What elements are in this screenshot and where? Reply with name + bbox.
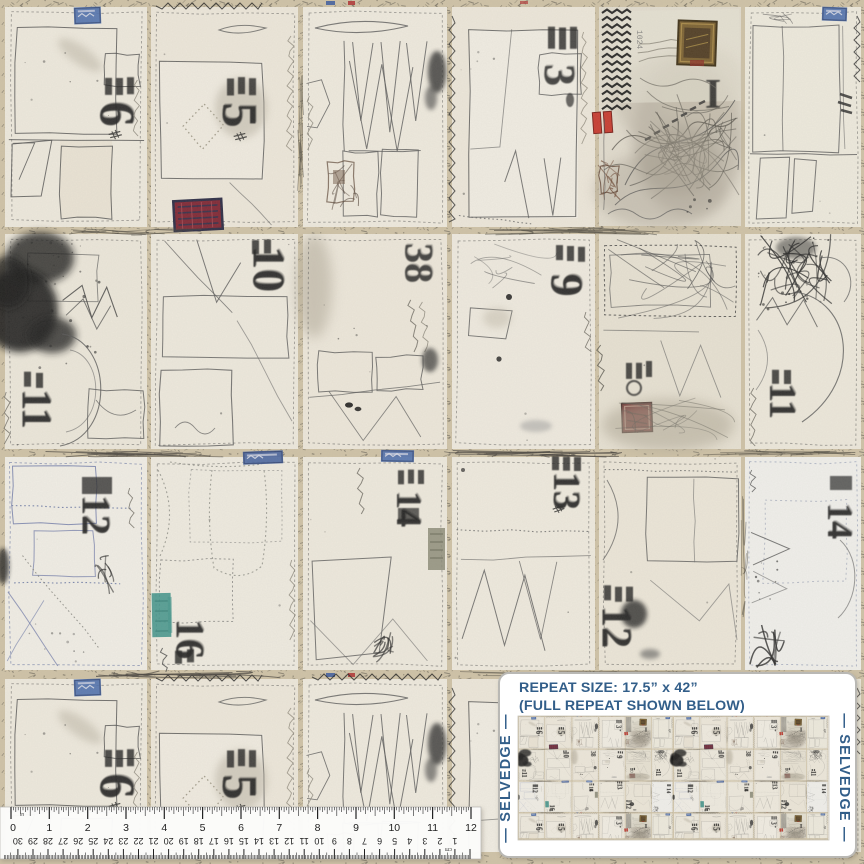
svg-text:17: 17	[209, 836, 219, 846]
svg-text:11: 11	[427, 822, 438, 834]
svg-text:14: 14	[254, 836, 264, 846]
svg-text:3: 3	[422, 836, 427, 846]
svg-text:18: 18	[194, 836, 204, 846]
svg-text:20: 20	[164, 836, 174, 846]
svg-text:1: 1	[46, 822, 52, 834]
svg-text:in: in	[20, 812, 24, 818]
svg-text:24: 24	[103, 836, 113, 846]
svg-text:30: 30	[13, 836, 23, 846]
svg-text:19: 19	[179, 836, 189, 846]
svg-text:25: 25	[88, 836, 98, 846]
svg-text:7: 7	[276, 822, 282, 834]
svg-text:REPEAT SIZE: 17.5” x 42”: REPEAT SIZE: 17.5” x 42”	[519, 680, 698, 696]
svg-text:22: 22	[133, 836, 143, 846]
svg-text:27: 27	[58, 836, 68, 846]
svg-text:10: 10	[388, 822, 400, 834]
svg-text:7: 7	[362, 836, 367, 846]
svg-text:0: 0	[10, 822, 16, 834]
svg-text:3: 3	[123, 822, 129, 834]
svg-text:12: 12	[284, 836, 294, 846]
svg-text:4: 4	[407, 836, 412, 846]
svg-text:— SELVEDGE —: — SELVEDGE —	[498, 713, 514, 842]
svg-text:9: 9	[353, 822, 359, 834]
svg-text:8: 8	[315, 822, 321, 834]
svg-text:4: 4	[161, 822, 167, 834]
svg-text:9: 9	[332, 836, 337, 846]
svg-text:28: 28	[43, 836, 53, 846]
svg-text:16: 16	[224, 836, 234, 846]
svg-text:5: 5	[392, 836, 397, 846]
svg-text:21: 21	[148, 836, 158, 846]
svg-text:6: 6	[238, 822, 244, 834]
svg-text:12: 12	[465, 822, 477, 834]
svg-text:cm: cm	[444, 846, 452, 852]
svg-text:— SELVEDGE —: — SELVEDGE —	[836, 713, 852, 842]
svg-text:10: 10	[314, 836, 324, 846]
svg-text:26: 26	[73, 836, 83, 846]
svg-text:23: 23	[118, 836, 128, 846]
svg-text:8: 8	[347, 836, 352, 846]
svg-text:2: 2	[437, 836, 442, 846]
svg-text:13: 13	[269, 836, 279, 846]
svg-text:1: 1	[452, 836, 457, 846]
svg-text:2: 2	[85, 822, 91, 834]
svg-text:11: 11	[300, 836, 309, 846]
svg-text:15: 15	[239, 836, 249, 846]
svg-text:6: 6	[377, 836, 382, 846]
svg-text:5: 5	[200, 822, 206, 834]
svg-text:29: 29	[28, 836, 38, 846]
svg-text:(FULL REPEAT SHOWN BELOW): (FULL REPEAT SHOWN BELOW)	[519, 698, 745, 714]
